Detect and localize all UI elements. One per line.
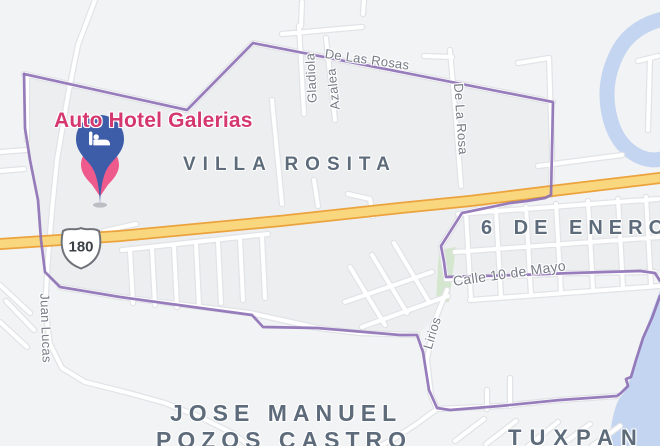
neighborhood-label-6-de-enero[interactable]: 6 DE ENERO bbox=[481, 217, 660, 240]
poi-label-auto-hotel-galerias[interactable]: Auto Hotel Galerias bbox=[54, 109, 253, 133]
street-label-gladiola: Gladiola bbox=[302, 53, 320, 104]
neighborhood-label-pozos-castro[interactable]: POZOS CASTRO bbox=[156, 427, 410, 446]
neighborhood-label-villa-rosita[interactable]: VILLA ROSITA bbox=[183, 154, 397, 176]
map-viewport[interactable]: Auto Hotel Galerias 180 VILLA ROSITA 6 D… bbox=[0, 0, 660, 446]
neighborhood-label-tuxpan[interactable]: TUXPAN bbox=[508, 425, 645, 446]
route-shield-number: 180 bbox=[68, 239, 93, 256]
street-label-juan-lucas: Juan Lucas bbox=[37, 293, 54, 363]
neighborhood-label-jose-manuel[interactable]: JOSE MANUEL bbox=[170, 400, 396, 427]
